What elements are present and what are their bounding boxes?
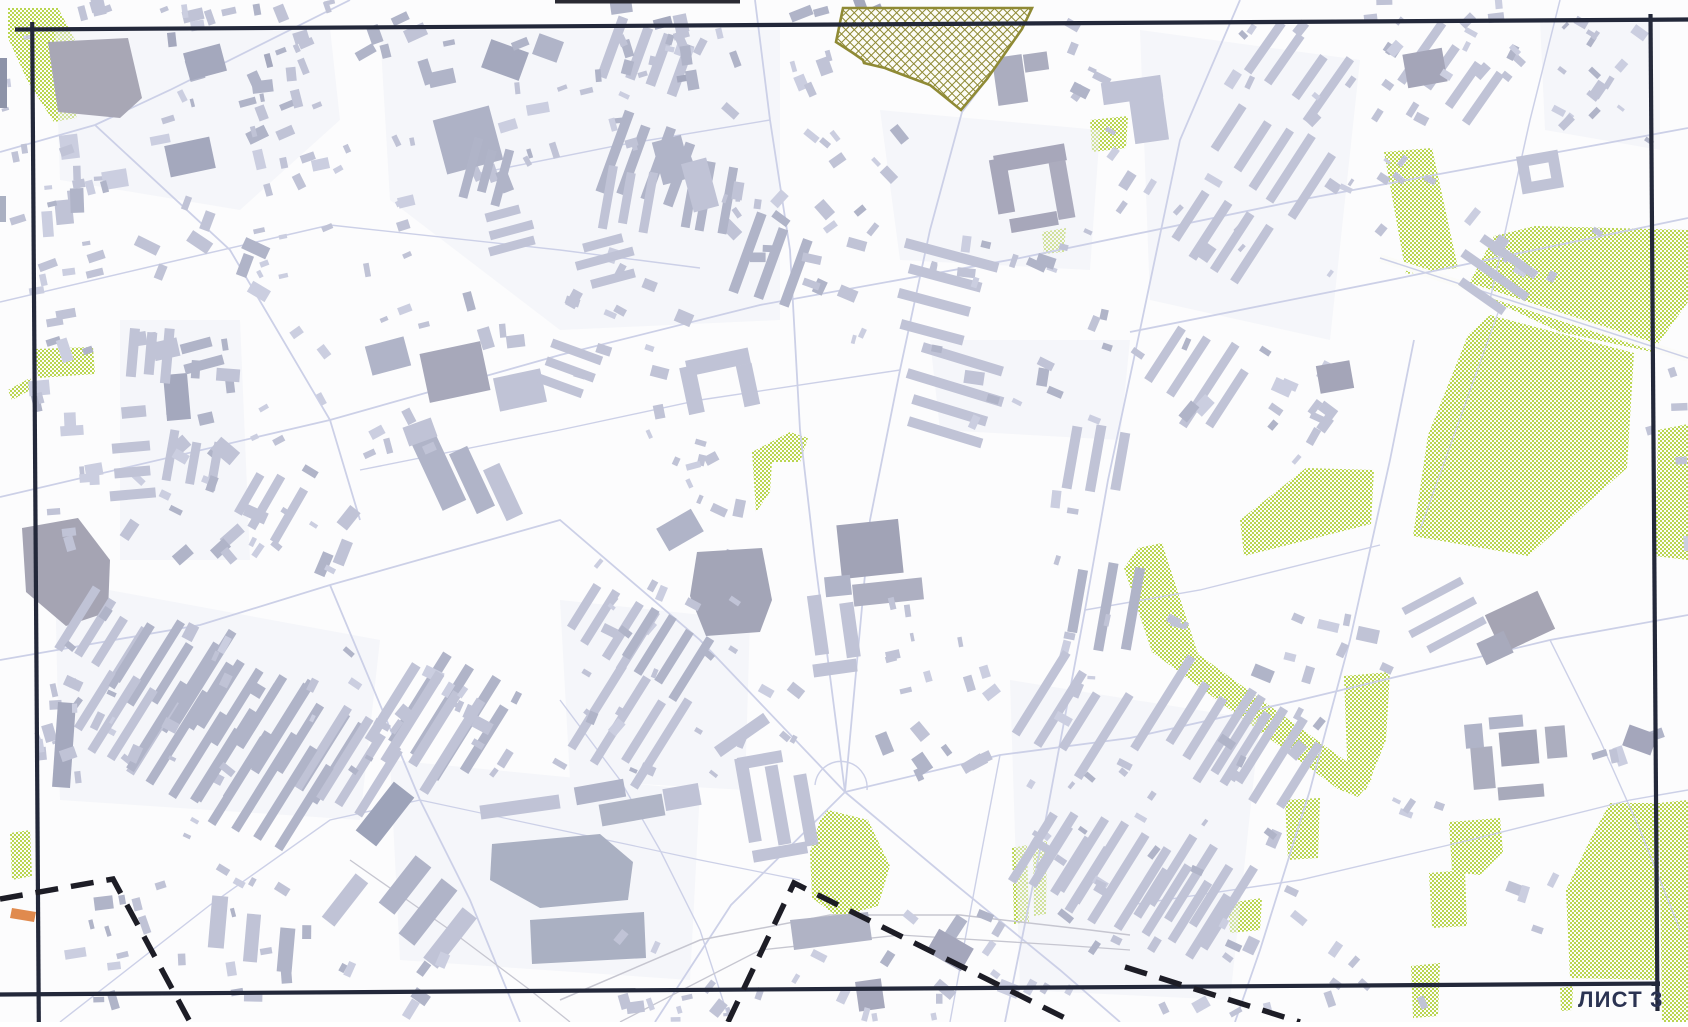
svg-text:ЛИСТ 3: ЛИСТ 3 xyxy=(1578,987,1664,1012)
